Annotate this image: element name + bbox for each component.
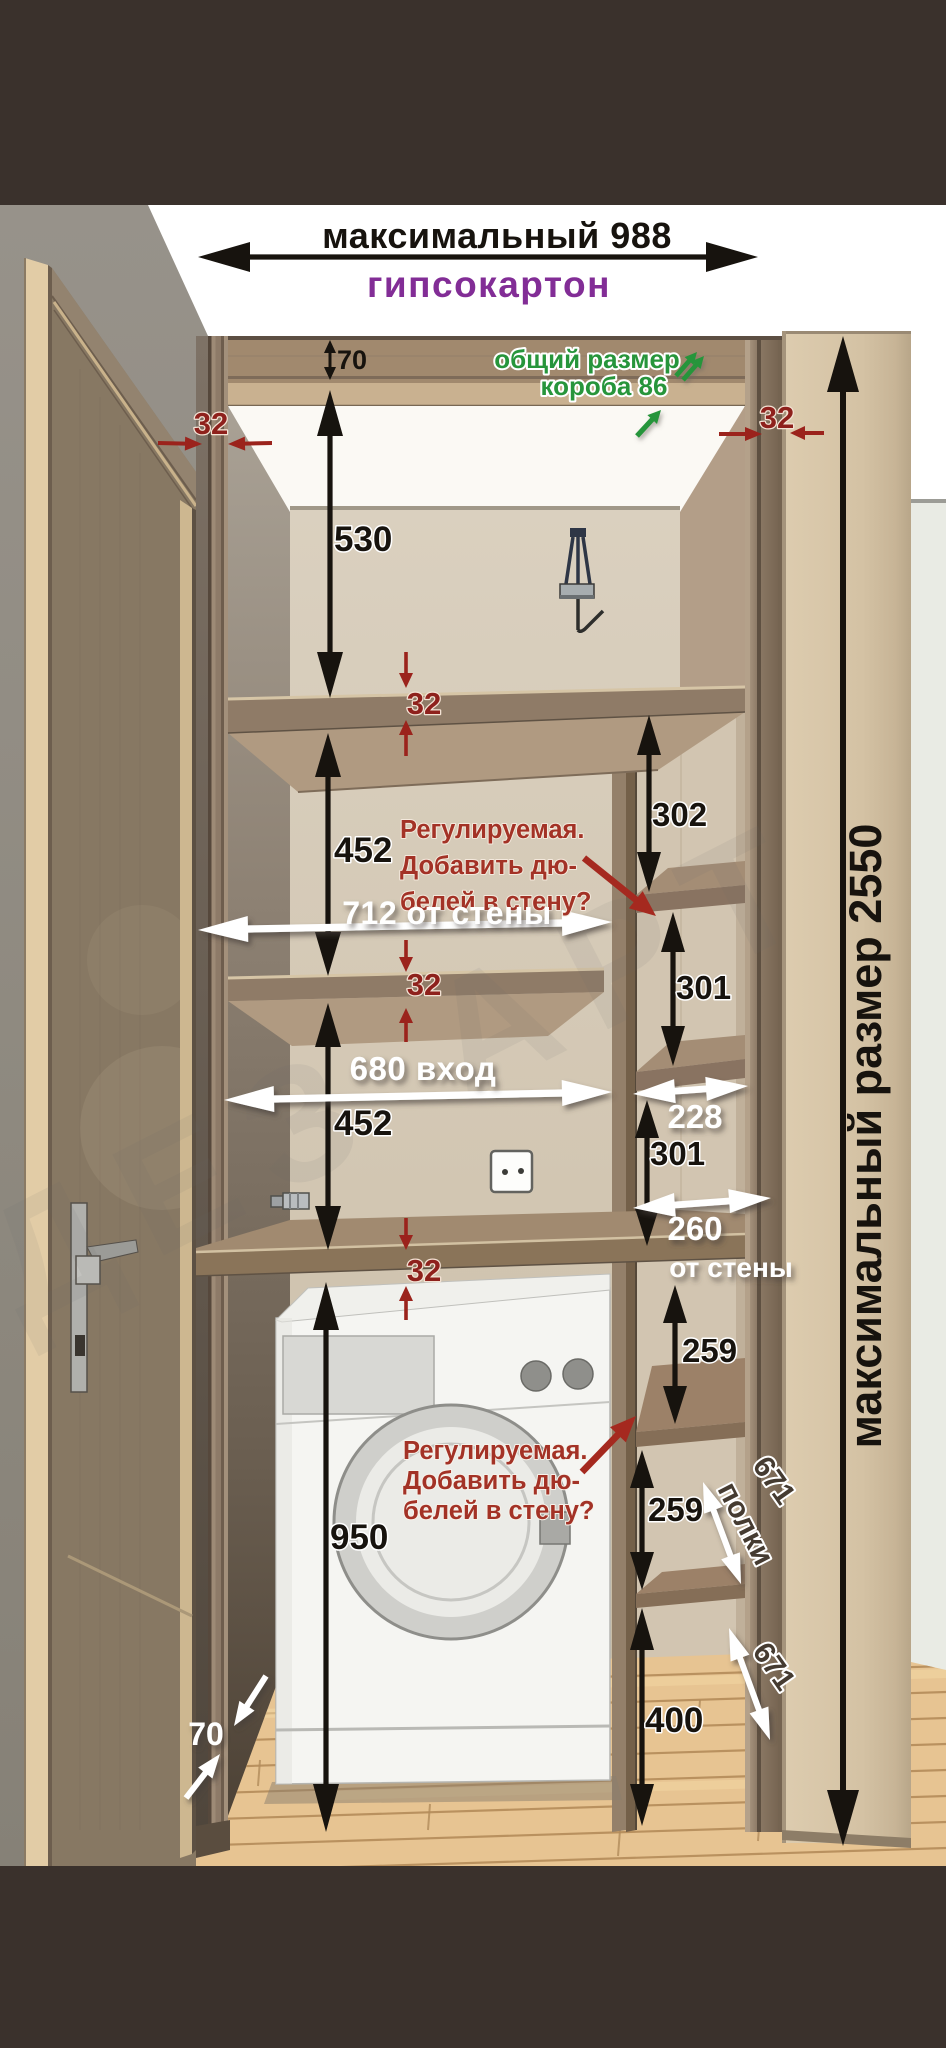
svg-text:260: 260 bbox=[667, 1210, 722, 1247]
svg-text:302: 302 bbox=[652, 796, 707, 833]
svg-text:Добавить дю-: Добавить дю- bbox=[400, 852, 577, 880]
svg-text:Добавить дю-: Добавить дю- bbox=[403, 1467, 580, 1495]
svg-text:452: 452 bbox=[334, 1104, 392, 1143]
svg-text:950: 950 bbox=[330, 1518, 388, 1557]
svg-text:32: 32 bbox=[407, 686, 441, 721]
svg-text:452: 452 bbox=[334, 831, 392, 870]
svg-text:301: 301 bbox=[676, 969, 731, 1006]
svg-text:32: 32 bbox=[407, 1253, 441, 1288]
svg-text:301: 301 bbox=[650, 1135, 705, 1172]
svg-text:белей в стену?: белей в стену? bbox=[403, 1497, 595, 1525]
svg-text:32: 32 bbox=[407, 967, 441, 1002]
svg-text:259: 259 bbox=[682, 1332, 737, 1369]
svg-text:гипсокартон: гипсокартон bbox=[367, 264, 611, 305]
svg-text:680 вход: 680 вход bbox=[350, 1050, 497, 1087]
svg-text:общий размер: общий размер bbox=[494, 344, 680, 374]
svg-text:32: 32 bbox=[760, 400, 794, 435]
svg-text:Регулируемая.: Регулируемая. bbox=[403, 1437, 588, 1465]
svg-text:259: 259 bbox=[648, 1491, 703, 1528]
svg-text:короба 86: короба 86 bbox=[541, 371, 668, 401]
svg-text:максимальный 988: максимальный 988 bbox=[322, 215, 672, 256]
svg-text:712 от стены: 712 от стены bbox=[342, 895, 552, 931]
svg-text:400: 400 bbox=[645, 1701, 703, 1740]
svg-text:530: 530 bbox=[334, 520, 392, 559]
svg-text:максимальный размер 2550: максимальный размер 2550 bbox=[840, 824, 891, 1449]
svg-text:70: 70 bbox=[337, 345, 367, 375]
svg-text:32: 32 bbox=[194, 406, 228, 441]
svg-text:Регулируемая.: Регулируемая. bbox=[400, 816, 585, 844]
svg-text:70: 70 bbox=[188, 1716, 224, 1752]
svg-text:228: 228 bbox=[667, 1098, 722, 1135]
svg-text:от стены: от стены bbox=[669, 1252, 793, 1283]
